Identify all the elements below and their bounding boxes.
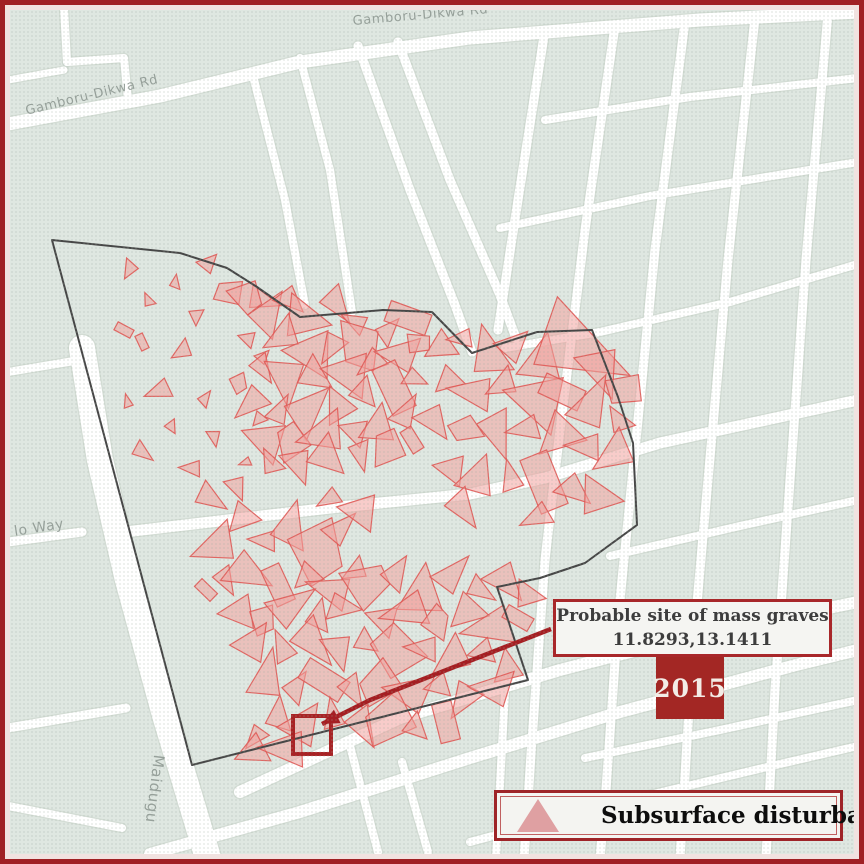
disturbance-marker bbox=[124, 394, 133, 409]
disturbance-marker bbox=[584, 474, 624, 514]
disturbance-marker bbox=[198, 391, 211, 409]
legend: Subsurface disturbance bbox=[494, 790, 843, 841]
disturbance-marker bbox=[114, 322, 134, 338]
triangle-icon bbox=[517, 799, 559, 832]
disturbance-marker bbox=[132, 440, 153, 461]
disturbance-marker bbox=[230, 501, 262, 532]
callout-box: Probable site of mass graves 11.8293,13.… bbox=[553, 599, 832, 657]
disturbance-marker bbox=[171, 338, 191, 358]
disturbance-marker bbox=[407, 334, 429, 353]
disturbance-marker bbox=[195, 579, 218, 602]
disturbance-marker bbox=[239, 457, 252, 465]
disturbance-marker bbox=[164, 419, 175, 434]
disturbance-marker bbox=[206, 432, 220, 448]
disturbance-marker bbox=[430, 556, 469, 594]
disturbance-marker bbox=[145, 293, 156, 307]
map-canvas: Probable site of mass graves 11.8293,13.… bbox=[10, 10, 854, 854]
year-badge: 2015 bbox=[656, 657, 724, 719]
figure-frame: Probable site of mass graves 11.8293,13.… bbox=[0, 0, 864, 864]
disturbance-marker bbox=[593, 427, 634, 469]
disturbance-marker bbox=[178, 461, 199, 477]
disturbance-marker bbox=[144, 378, 173, 396]
roads-layer bbox=[10, 10, 854, 854]
disturbance-marker bbox=[195, 480, 227, 509]
disturbance-marker bbox=[230, 623, 267, 663]
disturbance-marker bbox=[135, 333, 149, 351]
legend-label: Subsurface disturbance bbox=[601, 802, 854, 829]
disturbance-marker bbox=[275, 630, 297, 664]
callout-coordinates: 11.8293,13.1411 bbox=[613, 628, 773, 652]
disturbance-marker bbox=[223, 477, 243, 501]
disturbance-marker bbox=[412, 405, 447, 440]
disturbance-marker bbox=[229, 372, 246, 394]
callout-title: Probable site of mass graves bbox=[556, 604, 828, 628]
disturbance-marker bbox=[505, 415, 541, 439]
disturbance-marker bbox=[348, 440, 368, 473]
disturbance-marker bbox=[217, 594, 253, 628]
disturbance-marker bbox=[125, 258, 139, 279]
disturbance-marker bbox=[189, 310, 204, 326]
map-svg bbox=[10, 10, 854, 854]
year-badge-label: 2015 bbox=[653, 674, 727, 703]
disturbance-marker bbox=[170, 274, 180, 289]
disturbance-marker bbox=[253, 411, 268, 426]
disturbance-marker bbox=[238, 333, 255, 349]
